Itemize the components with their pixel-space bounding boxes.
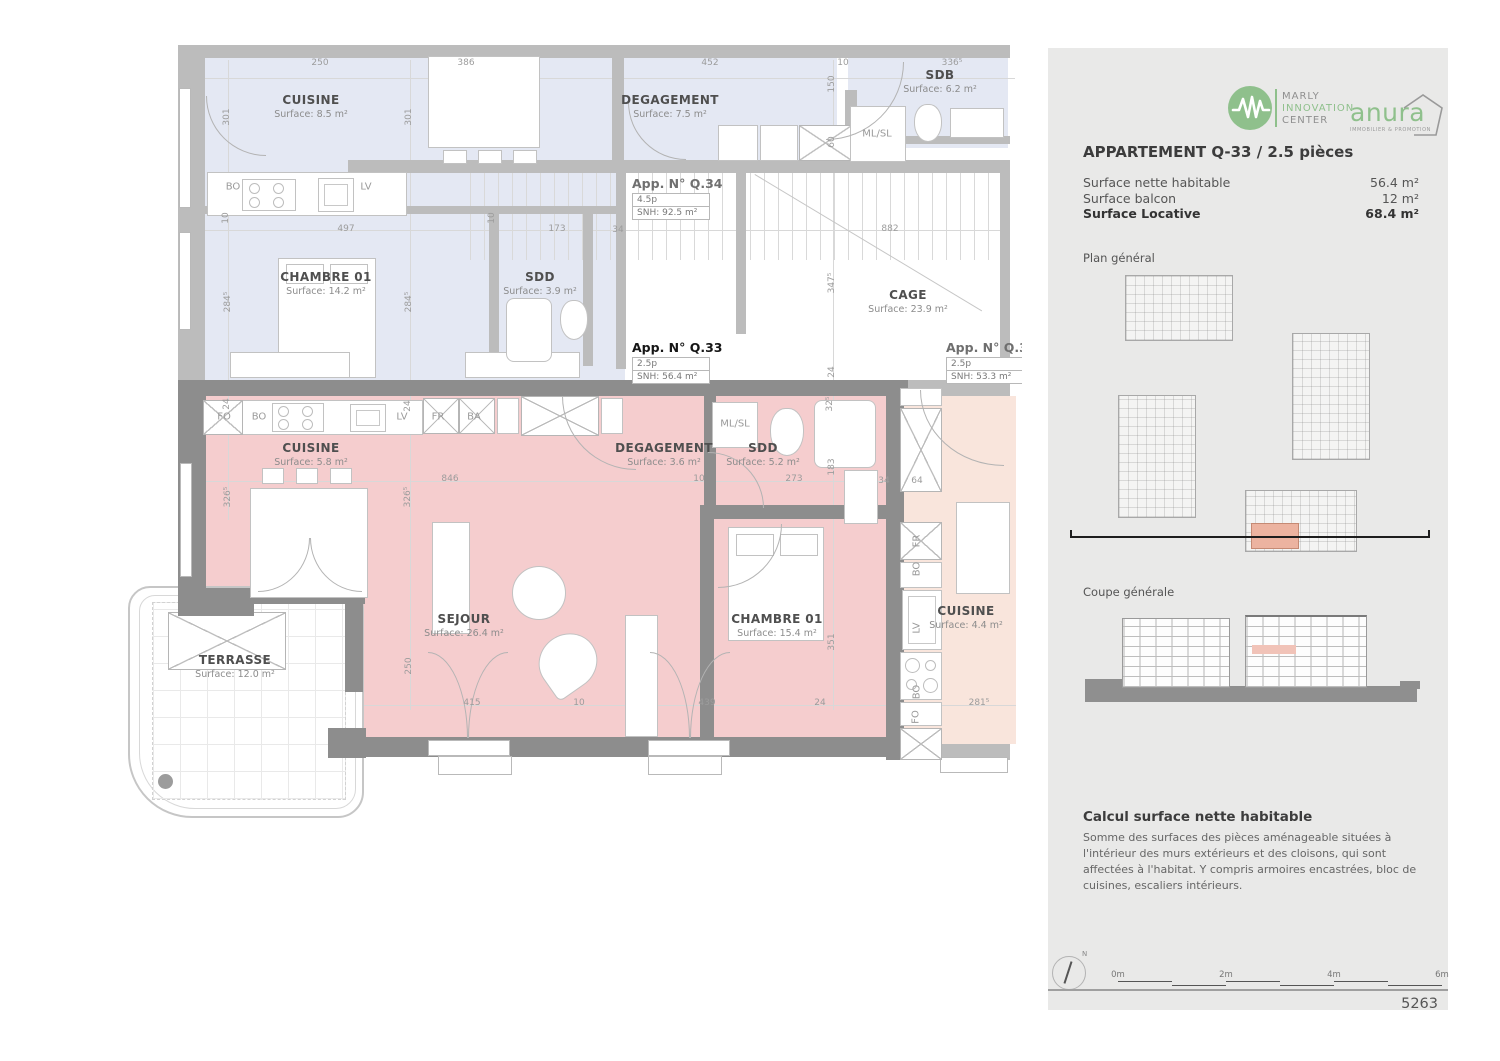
dimension-label: 882	[881, 224, 898, 234]
dimension-label: 10	[837, 58, 848, 68]
dimension-label: 284⁵	[404, 292, 414, 313]
north-arrow	[1052, 956, 1086, 990]
calcul-body: Somme des surfaces des pièces aménageabl…	[1083, 830, 1419, 894]
north-label: N	[1082, 950, 1087, 958]
scale-bar: 0m2m4m6m	[1118, 970, 1442, 988]
dimension-label: 10	[487, 212, 497, 223]
calcul-heading: Calcul surface nette habitable	[1083, 809, 1312, 825]
dimension-label: 415	[463, 698, 480, 708]
dimension-label: 10	[221, 212, 231, 223]
mic-logo-divider	[1275, 89, 1277, 127]
surface-row: Surface Locative 68.4 m²	[1083, 206, 1419, 222]
building-thumbnail	[1118, 395, 1196, 518]
dimension-label: 326⁵	[223, 487, 233, 508]
surface-value: 68.4 m²	[1365, 206, 1419, 222]
dimension-label: 497	[337, 224, 354, 234]
dimension-label: 24	[827, 366, 837, 377]
north-needle	[1063, 961, 1072, 983]
building-thumbnail	[1292, 333, 1370, 460]
scale-label: 0m	[1111, 970, 1125, 980]
dimension-label: 64	[911, 476, 922, 486]
dimension-label: 439	[698, 698, 715, 708]
dimension-label: 326⁵	[403, 487, 413, 508]
surface-value: 56.4 m²	[1370, 175, 1419, 191]
coupe-generale-label: Coupe générale	[1083, 585, 1174, 599]
dimension-label: 301	[404, 108, 414, 125]
dimension-label: 173	[548, 224, 565, 234]
floor-plan-drawing: CUISINE Surface: 8.5 m² DEGAGEMENT Surfa…	[0, 0, 1022, 1061]
surface-label: Surface nette habitable	[1083, 175, 1230, 191]
mic-line-3: CENTER	[1282, 115, 1354, 127]
dimension-label: 273	[785, 474, 802, 484]
dimension-label: 281⁵	[969, 698, 990, 708]
dimension-label: 24	[403, 400, 413, 411]
surface-value: 12 m²	[1382, 191, 1419, 207]
mic-logo-text: MARLY INNOVATION CENTER	[1282, 91, 1354, 127]
scale-label: 4m	[1327, 970, 1341, 980]
mic-logo-icon	[1228, 86, 1272, 130]
dimension-label: 351	[827, 633, 837, 650]
dimension-label: 34	[878, 476, 889, 486]
dimension-label: 10	[693, 474, 704, 484]
dimension-label: 34	[612, 225, 623, 235]
dimension-label: 24	[222, 398, 232, 409]
surface-row: Surface balcon 12 m²	[1083, 191, 1419, 207]
section-cut-line	[1070, 536, 1430, 538]
dimension-label: 60	[827, 136, 837, 147]
dimension-label: 10	[573, 698, 584, 708]
section-ground	[1085, 686, 1417, 702]
apartment-floor-highlight	[1252, 645, 1296, 654]
apartment-sheet: CUISINE Surface: 8.5 m² DEGAGEMENT Surfa…	[0, 0, 1500, 1061]
dimension-label: 150	[827, 75, 837, 92]
anura-logo: anura IMMOBILIER & PROMOTION	[1350, 100, 1446, 140]
section-building-right	[1245, 615, 1367, 688]
dimension-label: 386	[457, 58, 474, 68]
dimension-label: 846	[441, 474, 458, 484]
building-thumbnail-highlighted	[1245, 490, 1357, 552]
sheet-number: 5263	[1401, 996, 1438, 1012]
mic-logo	[1228, 86, 1272, 130]
dimension-label: 24	[814, 698, 825, 708]
dimension-label: 284⁵	[223, 292, 233, 313]
mic-line-2: INNOVATION	[1282, 103, 1354, 115]
dimension-label: 336⁵	[942, 58, 963, 68]
dimension-label: 250	[311, 58, 328, 68]
surface-label: Surface Locative	[1083, 206, 1200, 222]
dimension-label: 183	[827, 458, 837, 475]
scale-label: 6m	[1435, 970, 1449, 980]
dimension-labels: 250 386 452 10 336⁵ 301 301 150 60 10 49…	[0, 0, 1022, 1061]
surface-label: Surface balcon	[1083, 191, 1176, 207]
dimension-label: 250	[404, 657, 414, 674]
dimension-label: 301	[222, 108, 232, 125]
footer-rule	[1048, 989, 1448, 991]
mic-line-1: MARLY	[1282, 91, 1354, 103]
surface-summary: Surface nette habitable 56.4 m² Surface …	[1083, 175, 1419, 222]
scale-label: 2m	[1219, 970, 1233, 980]
dimension-label: 32⁵	[825, 396, 835, 411]
dimension-label: 452	[701, 58, 718, 68]
dimension-label: 347⁵	[827, 273, 837, 294]
plan-general-label: Plan général	[1083, 251, 1155, 265]
info-panel: MARLY INNOVATION CENTER anura IMMOBILIER…	[1048, 48, 1448, 1010]
section-building-left	[1122, 618, 1230, 688]
surface-row: Surface nette habitable 56.4 m²	[1083, 175, 1419, 191]
page-title: APPARTEMENT Q-33 / 2.5 pièces	[1083, 143, 1353, 161]
anura-house-icon	[1402, 92, 1444, 138]
building-thumbnail	[1125, 275, 1233, 341]
